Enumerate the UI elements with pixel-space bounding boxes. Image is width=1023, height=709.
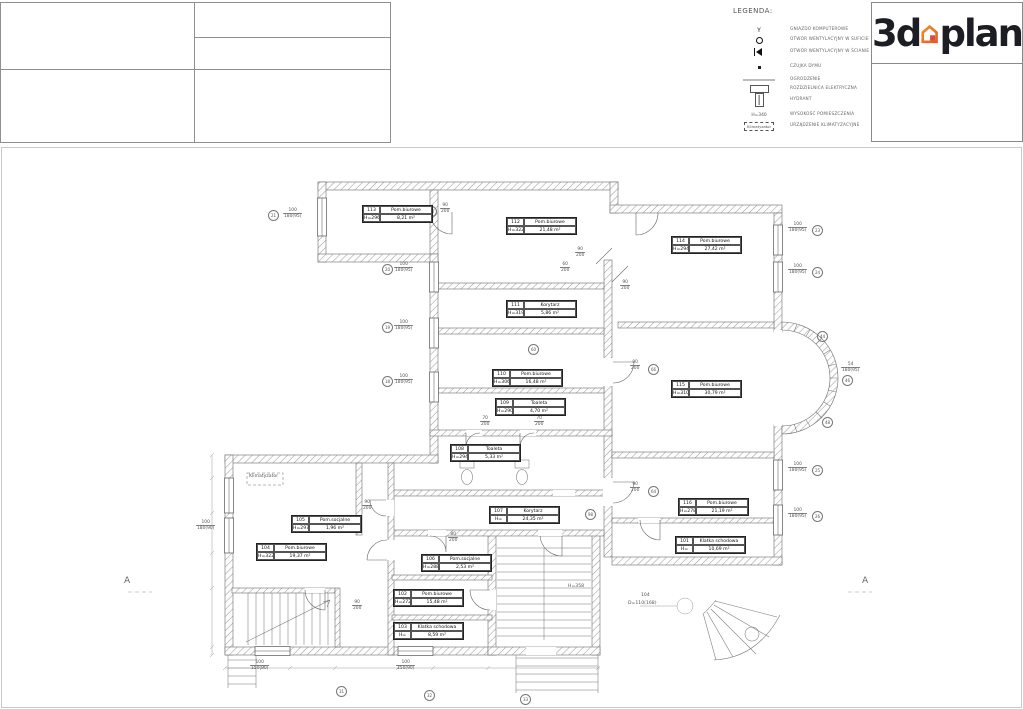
legend-item-label: WYSOKOŚĆ POMIESZCZENIA: [790, 111, 854, 116]
legend-item-label: ROZDZIELNICA ELEKTRYCZNA: [790, 85, 857, 90]
title-block-cell: [0, 69, 196, 143]
legend-symbol-glyph: [757, 27, 761, 34]
legend-item-label: OTWÓR WENTYLACYJNY W ŚCIANIE: [790, 48, 869, 53]
legend-item: H=340 WYSOKOŚĆ POMIESZCZENIA: [728, 109, 871, 121]
legend-symbol-icon: Klimatyzator: [742, 120, 776, 132]
legend-item-label: OGRODZENIE: [790, 76, 821, 81]
logo: 3d plan: [871, 2, 1023, 65]
legend-item-label: GNIAZDO KOMPUTEROWE: [790, 26, 848, 31]
title-block-cell: [194, 37, 391, 71]
legend-symbol-glyph: [758, 66, 761, 69]
legend-symbol-icon: [742, 46, 776, 58]
legend-item: OGRODZENIE: [728, 74, 871, 86]
title-block-cell: [194, 69, 391, 143]
legend-title: LEGENDA:: [733, 7, 773, 15]
legend-item-label: HYDRANT: [790, 96, 812, 101]
legend-item-label: OTWÓR WENTYLACYJNY W SUFICIE: [790, 36, 869, 41]
title-block-cell: [0, 2, 196, 71]
legend-items: GNIAZDO KOMPUTEROWE OTWÓR WENTYLACYJNY W…: [728, 2, 871, 140]
legend-item: HYDRANT: [728, 94, 871, 106]
drawing-frame: [1, 147, 1022, 708]
legend-symbol-icon: [742, 83, 776, 95]
legend-symbol-glyph: [756, 37, 763, 44]
legend-item: ROZDZIELNICA ELEKTRYCZNA: [728, 83, 871, 95]
legend-symbol-glyph: [750, 85, 769, 93]
legend-item: OTWÓR WENTYLACYJNY W SUFICIE: [728, 34, 871, 46]
logo-under-cell: [871, 63, 1023, 142]
legend-item: GNIAZDO KOMPUTEROWE: [728, 24, 871, 36]
legend: LEGENDA: GNIAZDO KOMPUTEROWE OTWÓR WENTY…: [728, 2, 871, 140]
legend-symbol-icon: [742, 61, 776, 73]
legend-symbol-glyph: Klimatyzator: [744, 122, 774, 131]
title-block-cell: [194, 2, 391, 39]
legend-symbol-icon: [742, 34, 776, 46]
legend-item: CZUJKA DYMU: [728, 61, 871, 73]
logo-text-3d: 3d: [872, 15, 920, 52]
legend-symbol-icon: H=340: [742, 109, 776, 121]
legend-item-label: URZĄDZENIE KLIMATYZACYJNE: [790, 122, 859, 127]
legend-symbol-icon: [742, 74, 776, 86]
legend-item: Klimatyzator URZĄDZENIE KLIMATYZACYJNE: [728, 120, 871, 132]
legend-symbol-icon: [742, 94, 776, 106]
legend-symbol-icon: [742, 24, 776, 36]
legend-symbol-glyph: H=340: [751, 113, 766, 118]
legend-symbol-glyph: [743, 79, 775, 82]
legend-item: OTWÓR WENTYLACYJNY W ŚCIANIE: [728, 46, 871, 58]
logo-text-plan: plan: [940, 15, 1022, 52]
legend-symbol-glyph: [754, 48, 765, 56]
legend-symbol-glyph: [755, 93, 764, 107]
house-icon: [921, 13, 938, 55]
legend-item-label: CZUJKA DYMU: [790, 63, 821, 68]
